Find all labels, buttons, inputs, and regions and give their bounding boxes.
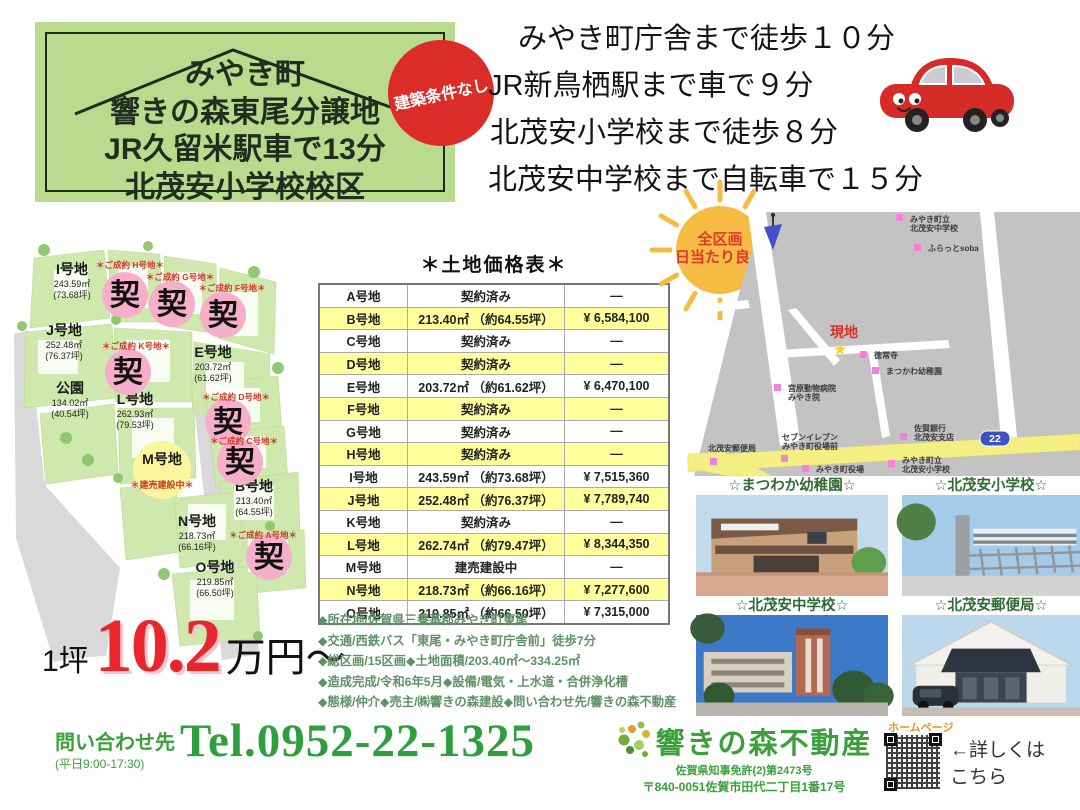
- svg-text:北茂安中学校: 北茂安中学校: [910, 223, 959, 233]
- photo-card-elementary-school: ☆北茂安小学校☆: [902, 474, 1080, 596]
- photo-card-post-office: ☆北茂安郵便局☆: [902, 594, 1080, 716]
- title-line: 北茂安小学校校区: [35, 169, 455, 207]
- svg-text:契: 契: [225, 446, 256, 479]
- svg-text:219.85㎡: 219.85㎡: [197, 577, 234, 587]
- access-line: JR新鳥栖駅まで車で９分: [488, 63, 923, 110]
- plot-id: C号地: [320, 330, 408, 352]
- svg-text:北茂安支店: 北茂安支店: [914, 432, 954, 442]
- plot-price: ¥ 7,789,740: [564, 488, 668, 510]
- property-detail-line: ◆交通/西鉄バス「東尾・みやき町庁舎前」徒歩7分: [318, 631, 690, 652]
- plot-detail: 252.48㎡ （約76.37坪）: [408, 488, 564, 510]
- svg-text:ふらっとsoba: ふらっとsoba: [928, 244, 979, 253]
- plot-id: I号地: [320, 466, 408, 488]
- svg-text:213.40㎡: 213.40㎡: [236, 496, 273, 506]
- plot-detail: 203.72㎡ （約61.62坪）: [408, 375, 564, 397]
- plot-price: —: [564, 353, 668, 375]
- badge-label: 建築条件なし: [392, 71, 491, 114]
- svg-text:＊ご成約 D号地＊: ＊ご成約 D号地＊: [202, 392, 270, 402]
- plot-price: ¥ 8,344,350: [564, 534, 668, 556]
- post-office-photo: [902, 615, 1080, 716]
- property-detail-line: ◆態様/仲介◆売主/㈱響きの森建設◆問い合わせ先/響きの森不動産: [318, 692, 690, 713]
- site-marker-star: ★: [832, 340, 847, 359]
- inquiry-hours: (平日9:00-17:30): [55, 755, 175, 772]
- flyer: みやき町響きの森東尾分譲地JR久留米駅車で13分北茂安小学校校区 建築条件なし …: [0, 0, 1080, 810]
- svg-text:252.48㎡: 252.48㎡: [46, 340, 83, 350]
- photo-card-kindergarten: ☆まつわか幼稚園☆: [696, 474, 888, 596]
- svg-text:＊ご成約 G号地＊: ＊ご成約 G号地＊: [146, 272, 214, 282]
- site-location-label: 現地: [830, 324, 858, 340]
- plot-id: L号地: [320, 534, 408, 556]
- plot-detail: 213.40㎡ （約64.55坪）: [408, 308, 564, 330]
- price-table-row: A号地 契約済み —: [320, 285, 668, 308]
- company-block: 響きの森不動産 佐賀県知事免許(2)第2473号 〒840-0051佐賀市田代二…: [606, 720, 882, 795]
- svg-text:(61.62坪): (61.62坪): [194, 373, 232, 383]
- plot-detail: 契約済み: [408, 398, 564, 420]
- price-per-tsubo: 1坪 10.2 万円〜: [42, 612, 346, 683]
- company-logo-icon: [615, 720, 653, 762]
- price-table-row: F号地 契約済み —: [320, 398, 668, 421]
- svg-text:＊ご成約 F号地＊: ＊ご成約 F号地＊: [198, 283, 265, 293]
- plot-price: ¥ 7,515,360: [564, 466, 668, 488]
- route-22-badge: 22: [980, 431, 1010, 446]
- svg-text:＊ご成約 C号地＊: ＊ご成約 C号地＊: [210, 436, 278, 446]
- price-table-row: N号地 218.73㎡ （約66.16坪） ¥ 7,277,600: [320, 579, 668, 602]
- junior-high-school-photo: [696, 615, 888, 716]
- company-license: 佐賀県知事免許(2)第2473号: [606, 762, 882, 778]
- svg-text:O号地: O号地: [196, 559, 235, 575]
- plot-detail: 262.74㎡ （約79.47坪）: [408, 534, 564, 556]
- svg-text:公園: 公園: [56, 380, 84, 396]
- plot-price: ¥ 6,470,100: [564, 375, 668, 397]
- plot-price: —: [564, 398, 668, 420]
- svg-text:262.93㎡: 262.93㎡: [117, 409, 154, 419]
- svg-text:E号地: E号地: [194, 344, 231, 360]
- svg-text:＊ご成約 H号地＊: ＊ご成約 H号地＊: [96, 260, 164, 270]
- tel-number: Tel.0952-22-1325: [180, 714, 535, 768]
- photo-caption: ☆北茂安小学校☆: [902, 474, 1080, 495]
- title-line: JR久留米駅車で13分: [35, 131, 455, 169]
- svg-text:契: 契: [208, 299, 239, 332]
- svg-text:218.73㎡: 218.73㎡: [179, 531, 216, 541]
- plot-detail: 契約済み: [408, 353, 564, 375]
- plot-detail: 契約済み: [408, 285, 564, 307]
- price-table-row: L号地 262.74㎡ （約79.47坪） ¥ 8,344,350: [320, 534, 668, 557]
- plot-price: ¥ 7,277,600: [564, 579, 668, 601]
- svg-text:北茂安郵便局: 北茂安郵便局: [708, 443, 756, 453]
- qr-note: ←詳しくは こちら: [950, 737, 1045, 791]
- plot-id: N号地: [320, 579, 408, 601]
- plot-price: —: [564, 330, 668, 352]
- inquiry-label: 問い合わせ先: [55, 726, 175, 755]
- svg-text:みやき町役場前: みやき町役場前: [782, 441, 838, 451]
- access-line: みやき町庁舎まで徒歩１０分: [488, 16, 923, 63]
- svg-text:みやき町立: みやき町立: [910, 214, 950, 224]
- plot-id: G号地: [320, 421, 408, 443]
- svg-text:I号地: I号地: [56, 261, 88, 277]
- area-map: 現地 ★ 22 みやき町立北茂安中学校ふらっとsoba徳常寺まつかわ幼稚園宮原動…: [688, 210, 1080, 476]
- plot-id: H号地: [320, 443, 408, 465]
- property-detail-line: ◆所在地/佐賀県三養基郡みやき町東尾: [318, 610, 690, 631]
- svg-text:(73.68坪): (73.68坪): [53, 290, 91, 300]
- qr-note-line1: ←詳しくは: [950, 737, 1045, 764]
- svg-text:契: 契: [113, 356, 144, 389]
- svg-text:(64.55坪): (64.55坪): [235, 507, 273, 517]
- qr-finder-icon: [884, 733, 897, 746]
- svg-text:N号地: N号地: [178, 513, 216, 529]
- svg-text:北茂安小学校: 北茂安小学校: [902, 464, 951, 474]
- svg-text:M号地: M号地: [142, 451, 182, 467]
- plot-id: F号地: [320, 398, 408, 420]
- photo-card-junior-high-school: ☆北茂安中学校☆: [696, 594, 888, 716]
- price-table-row: E号地 203.72㎡ （約61.62坪） ¥ 6,470,100: [320, 375, 668, 398]
- svg-text:＊ご成約 K号地＊: ＊ご成約 K号地＊: [102, 341, 170, 351]
- svg-text:243.59㎡: 243.59㎡: [54, 279, 91, 289]
- svg-text:(76.37坪): (76.37坪): [45, 351, 83, 361]
- price-table-title: ＊土地価格表＊: [318, 250, 670, 277]
- plot-detail: 218.73㎡ （約66.16坪）: [408, 579, 564, 601]
- svg-text:＊建売建設中＊: ＊建売建設中＊: [130, 479, 193, 490]
- qr-finder-icon: [929, 733, 942, 746]
- price-table-row: J号地 252.48㎡ （約76.37坪） ¥ 7,789,740: [320, 488, 668, 511]
- svg-text:佐賀銀行: 佐賀銀行: [913, 423, 946, 433]
- company-name: 響きの森不動産: [655, 720, 872, 762]
- car-icon: [872, 46, 1022, 146]
- route-number: 22: [989, 433, 1001, 445]
- price-value: 10.2: [95, 612, 220, 680]
- svg-text:みやき院: みやき院: [788, 392, 820, 402]
- svg-text:(40.54坪): (40.54坪): [51, 409, 89, 419]
- company-address: 〒840-0051佐賀市田代二丁目1番17号: [606, 778, 882, 795]
- price-prefix: 1坪: [42, 636, 89, 680]
- access-line: 北茂安小学校まで徒歩８分: [488, 110, 923, 157]
- no-build-conditions-badge: 建築条件なし: [388, 40, 494, 146]
- plot-detail: 契約済み: [408, 511, 564, 533]
- access-list: みやき町庁舎まで徒歩１０分JR新鳥栖駅まで車で９分北茂安小学校まで徒歩８分北茂安…: [488, 16, 923, 204]
- plot-id: E号地: [320, 375, 408, 397]
- svg-text:契: 契: [213, 406, 244, 439]
- photo-caption: ☆北茂安郵便局☆: [902, 594, 1080, 615]
- elementary-school-photo: [902, 495, 1080, 596]
- svg-text:J号地: J号地: [46, 322, 82, 338]
- svg-text:134.02㎡: 134.02㎡: [52, 398, 89, 408]
- svg-text:契: 契: [254, 541, 285, 574]
- price-table-row: M号地 建売建設中 —: [320, 556, 668, 579]
- plot-price: —: [564, 421, 668, 443]
- qr-finder-icon: [884, 778, 897, 791]
- plot-id: A号地: [320, 285, 408, 307]
- price-table-row: H号地 契約済み —: [320, 443, 668, 466]
- photo-caption: ☆北茂安中学校☆: [696, 594, 888, 615]
- price-table-row: K号地 契約済み —: [320, 511, 668, 534]
- property-detail-line: ◆造成完成/令和6年5月◆設備/電気・上水道・合併浄化槽: [318, 672, 690, 693]
- plot-price: —: [564, 556, 668, 578]
- svg-text:セブンイレブン: セブンイレブン: [782, 432, 838, 442]
- property-detail-line: ◆総区画/15区画◆土地面積/203.40㎡〜334.25㎡: [318, 651, 690, 672]
- svg-text:みやき町役場: みやき町役場: [816, 464, 864, 474]
- land-price-table: ＊土地価格表＊ A号地 契約済み — B号地 213.40㎡ （約64.55坪）…: [318, 250, 670, 625]
- svg-text:宮原動物病院: 宮原動物病院: [788, 383, 836, 393]
- plot-id: D号地: [320, 353, 408, 375]
- price-table-row: B号地 213.40㎡ （約64.55坪） ¥ 6,584,100: [320, 308, 668, 331]
- svg-text:契: 契: [157, 288, 188, 321]
- qr-note-line2: こちら: [950, 764, 1045, 791]
- plot-detail: 建売建設中: [408, 556, 564, 578]
- plot-detail: 契約済み: [408, 421, 564, 443]
- svg-text:みやき町立: みやき町立: [902, 455, 942, 465]
- price-table-row: C号地 契約済み —: [320, 330, 668, 353]
- property-details-list: ◆所在地/佐賀県三養基郡みやき町東尾◆交通/西鉄バス「東尾・みやき町庁舎前」徒歩…: [318, 610, 690, 713]
- price-table-row: D号地 契約済み —: [320, 353, 668, 376]
- svg-text:203.72㎡: 203.72㎡: [195, 362, 232, 372]
- plot-id: J号地: [320, 488, 408, 510]
- plot-id: B号地: [320, 308, 408, 330]
- plot-id: K号地: [320, 511, 408, 533]
- svg-text:徳常寺: 徳常寺: [873, 350, 898, 360]
- price-table-row: I号地 243.59㎡ （約73.68坪） ¥ 7,515,360: [320, 466, 668, 489]
- plot-id: M号地: [320, 556, 408, 578]
- kindergarten-photo: [696, 495, 888, 596]
- price-table-rows: A号地 契約済み — B号地 213.40㎡ （約64.55坪） ¥ 6,584…: [318, 283, 670, 625]
- photo-caption: ☆まつわか幼稚園☆: [696, 474, 888, 495]
- svg-text:(66.16坪): (66.16坪): [178, 542, 216, 552]
- svg-text:契: 契: [110, 279, 141, 312]
- plot-detail: 243.59㎡ （約73.68坪）: [408, 466, 564, 488]
- plot-price: —: [564, 511, 668, 533]
- svg-text:＊ご成約 A号地＊: ＊ご成約 A号地＊: [229, 530, 297, 540]
- svg-text:(79.53坪): (79.53坪): [116, 420, 154, 430]
- plot-price: —: [564, 443, 668, 465]
- plot-detail: 契約済み: [408, 443, 564, 465]
- plot-detail: 契約済み: [408, 330, 564, 352]
- inquiry-block: 問い合わせ先 (平日9:00-17:30): [55, 726, 175, 772]
- qr-code: [884, 733, 942, 791]
- price-table-row: G号地 契約済み —: [320, 421, 668, 444]
- svg-text:まつかわ幼稚園: まつかわ幼稚園: [886, 366, 942, 376]
- svg-text:(66.50坪): (66.50坪): [196, 588, 234, 598]
